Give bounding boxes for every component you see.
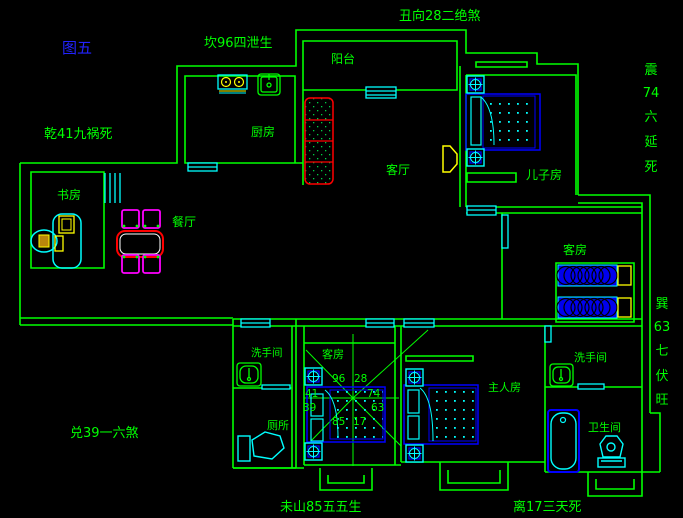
label-north: 坎96四泄生: [204, 36, 273, 51]
sink-west-icon: [237, 363, 261, 386]
compass-number: 39: [303, 402, 316, 414]
window-corridor-center: [366, 319, 394, 327]
cad-floorplan-canvas: 图五 坎96四泄生 丑向28二绝煞 乾41九祸死 兑39一六煞 未山85五五生 …: [0, 0, 683, 518]
compass-number: 41: [305, 388, 318, 400]
bathtub-icon: [548, 410, 579, 472]
master-bed: [404, 385, 478, 444]
nightstand-icon: [467, 149, 484, 166]
compass-number: 63: [371, 402, 384, 414]
study-desk: [31, 214, 81, 268]
label-south-right: 离17三天死: [513, 499, 582, 515]
window-washroom-east: [578, 384, 604, 389]
compass-number: 28: [354, 373, 367, 385]
door-living-guestroom: [502, 215, 508, 248]
nightstand-icon: [305, 368, 322, 385]
svg-text:死: 死: [644, 160, 657, 175]
door-washroom-toilet: [262, 385, 290, 389]
room-label-washroom-west: 洗手间: [251, 346, 283, 359]
room-label-kitchen: 厨房: [251, 124, 275, 139]
figure-title: 图五: [62, 39, 92, 57]
guest-room-beds: [557, 265, 631, 318]
toilet-west-icon: [238, 432, 284, 461]
room-label-toilet: 厕所: [267, 419, 289, 432]
sink-east-icon: [550, 364, 573, 386]
study-walls: [31, 172, 104, 268]
svg-text:延: 延: [644, 135, 657, 150]
pillow: [618, 266, 631, 285]
room-label-dining: 餐厅: [172, 214, 196, 229]
washroom-toilet-block-walls: [233, 319, 296, 468]
label-southeast-vertical: 巽 63 七 伏 旺: [654, 297, 671, 408]
room-label-master: 主人房: [488, 381, 521, 394]
door-master-bedroom: [545, 326, 551, 342]
svg-text:74: 74: [643, 86, 660, 101]
room-label-guest-center: 客房: [322, 347, 344, 361]
svg-text:旺: 旺: [655, 393, 668, 408]
compass-number: 17: [353, 416, 366, 428]
nightstand-icon: [467, 76, 484, 93]
compass-number: 74: [367, 388, 381, 400]
compass-number: 96: [332, 373, 346, 385]
toilet-east-icon: [598, 436, 625, 467]
tv-icon: [443, 146, 457, 172]
sons-room-bed: [466, 94, 540, 150]
svg-text:63: 63: [654, 320, 671, 335]
dining-set: [117, 210, 163, 273]
room-label-bathroom: 卫生间: [588, 420, 621, 434]
sofa: [305, 98, 333, 184]
room-label-guest-east: 客房: [563, 242, 587, 257]
svg-text:巽: 巽: [655, 297, 668, 312]
svg-text:震: 震: [644, 63, 657, 78]
window-balcony-living: [366, 87, 396, 98]
label-east-vertical: 震 74 六 延 死: [643, 63, 660, 175]
room-label-balcony: 阳台: [331, 51, 355, 66]
window-corridor-west: [241, 319, 270, 327]
stove-icon: [218, 75, 247, 93]
svg-text:七: 七: [655, 344, 668, 359]
window-study-side: [105, 173, 120, 203]
room-label-study: 书房: [57, 187, 81, 202]
compass-number: 85: [332, 416, 345, 428]
nightstand-icon: [406, 369, 423, 386]
svg-text:伏: 伏: [655, 369, 668, 384]
floorplan-drawing: 图五 坎96四泄生 丑向28二绝煞 乾41九祸死 兑39一六煞 未山85五五生 …: [0, 0, 683, 518]
bottom-wall-with-notches: [233, 462, 660, 496]
room-label-living: 客厅: [386, 162, 410, 177]
window-corridor-master: [404, 319, 434, 327]
label-west: 兑39一六煞: [70, 426, 139, 441]
label-northeast: 丑向28二绝煞: [399, 8, 481, 24]
label-south-left: 未山85五五生: [280, 500, 362, 515]
pillow: [618, 298, 631, 317]
window-sons-room: [467, 206, 496, 215]
label-northwest: 乾41九祸死: [44, 127, 113, 142]
svg-text:六: 六: [644, 110, 657, 125]
nightstand-icon: [406, 445, 423, 462]
window-kitchen: [188, 163, 217, 171]
nightstand-icon: [305, 443, 322, 460]
room-label-washroom-east: 洗手间: [574, 350, 607, 364]
room-label-sons-room: 儿子房: [526, 167, 562, 182]
kitchen-sink-icon: [258, 74, 280, 95]
